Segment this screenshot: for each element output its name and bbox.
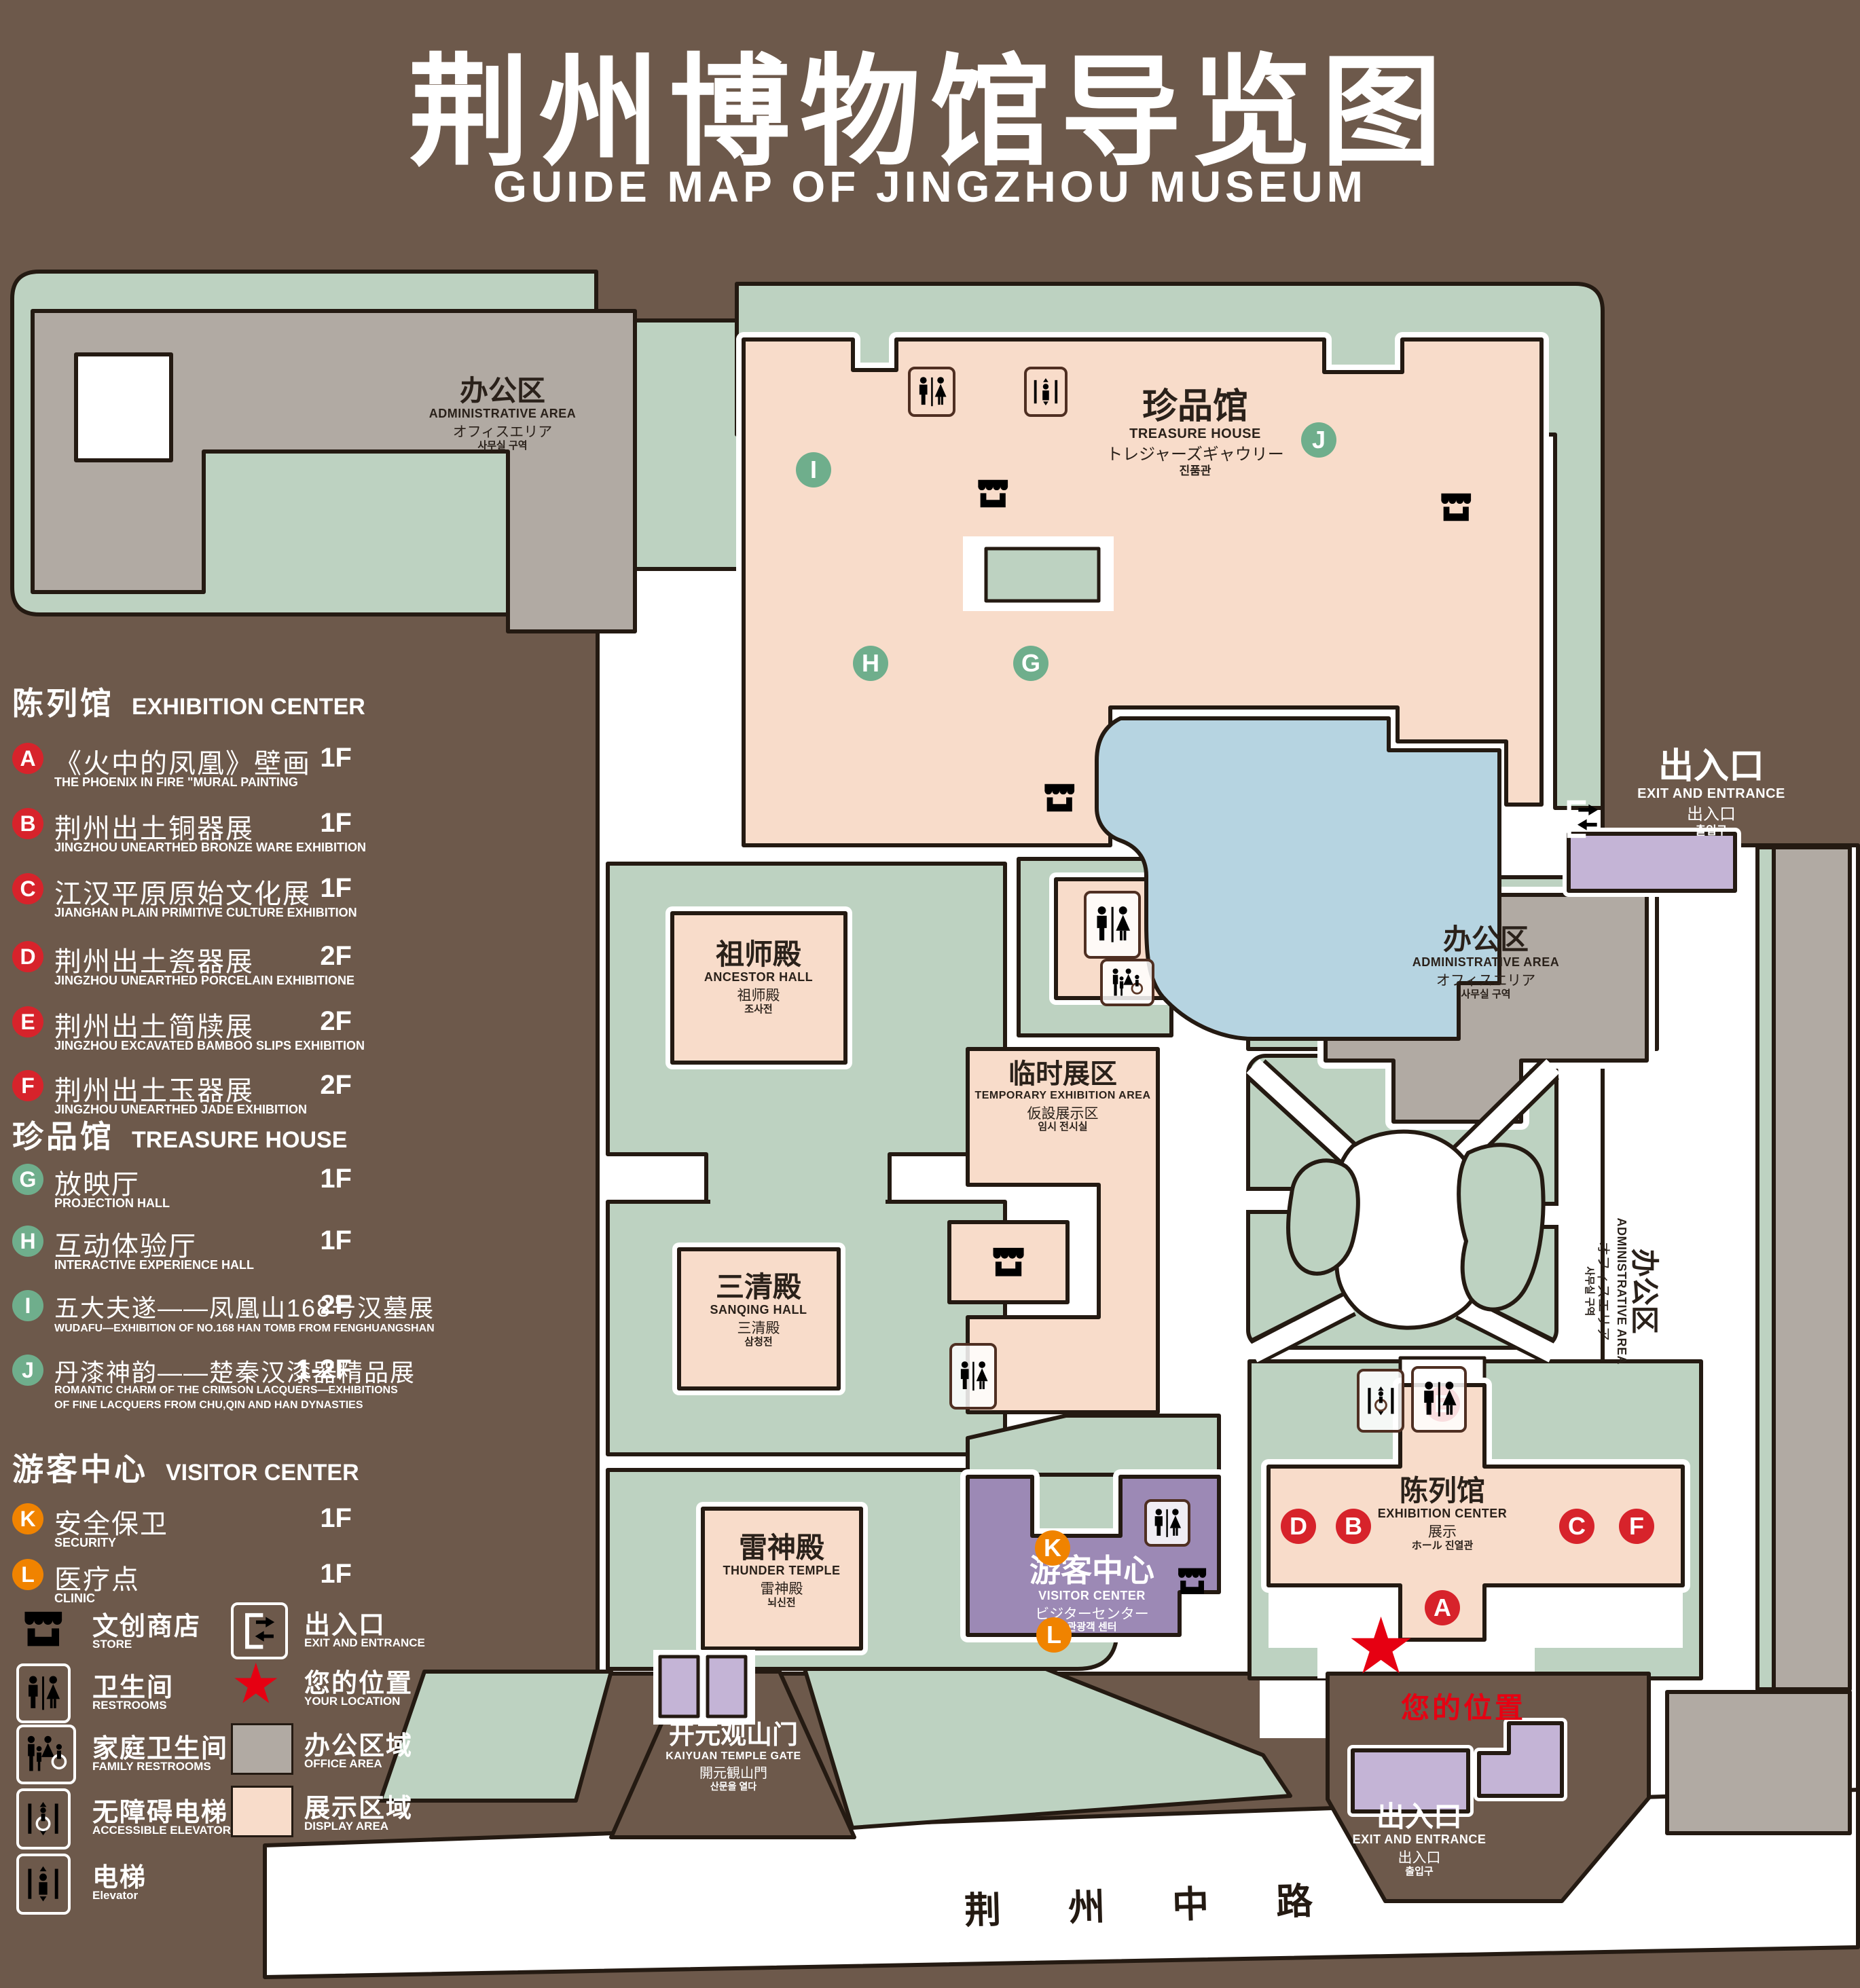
label-exit-south: 出入口EXIT AND ENTRANCE 出入口출입구 — [1229, 1801, 1609, 1878]
elevator-icon — [16, 1854, 71, 1915]
label-admin-northwest: 办公区ADMINISTRATIVE AREA オフィスエリア사무실 구역 — [312, 375, 693, 452]
legend-your-location: ★ 您的位置 YOUR LOCATION — [231, 1661, 516, 1715]
elevator-icon — [1024, 367, 1068, 417]
marker-h: H — [853, 646, 888, 681]
family-restroom-icon — [1100, 959, 1154, 1006]
marker-j: J — [1301, 422, 1336, 458]
your-location-star: ★ — [1346, 1608, 1416, 1686]
treasure-courtyard-lawn — [986, 549, 1099, 601]
legend-section-treasure: 珍品馆TREASURE HOUSE — [12, 1112, 347, 1157]
legend-exit: 出入口 EXIT AND ENTRANCE — [231, 1602, 516, 1657]
store-icon — [16, 1602, 71, 1657]
label-kaiyuan-gate: 开元观山门KAIYUAN TEMPLE GATE 開元観山門산문을 열다 — [543, 1721, 924, 1792]
exit-icon — [231, 1602, 288, 1659]
marker-i: I — [796, 452, 831, 487]
lawn-join-patch — [710, 1194, 886, 1211]
garden-island-west — [1288, 1160, 1358, 1274]
label-admin-center: 办公区ADMINISTRATIVE AREA オフィスエリア사무실 구역 — [1296, 923, 1676, 1001]
display-area-swatch — [231, 1786, 293, 1837]
office-nw-courtyard — [76, 354, 171, 460]
marker-k: K — [1035, 1530, 1070, 1566]
restroom-icon — [908, 367, 955, 417]
legend-section-exhibition: 陈列馆EXHIBITION CENTER — [12, 679, 365, 724]
legend-section-visitor: 游客中心VISITOR CENTER — [12, 1445, 359, 1490]
restroom-icon — [949, 1343, 997, 1410]
store-icon — [1038, 774, 1081, 823]
store-icon — [1434, 483, 1478, 532]
marker-c: C — [1559, 1509, 1594, 1544]
office-area-swatch — [231, 1723, 293, 1775]
marker-g: G — [1013, 646, 1048, 681]
marker-d: D — [1281, 1509, 1316, 1544]
marker-l: L — [1036, 1617, 1072, 1653]
label-admin-east: 办公区ADMINISTRATIVE AREA オフィスエリア사무실 구역 — [1583, 1101, 1660, 1481]
your-location-star: ★ — [231, 1657, 281, 1712]
legend-elevator: 电梯 Elevator — [16, 1854, 356, 1911]
store-icon — [986, 1237, 1031, 1287]
office-southeast-block — [1667, 1692, 1850, 1833]
restroom-icon — [1411, 1366, 1467, 1433]
accessible-elevator-icon — [16, 1788, 71, 1849]
marker-b: B — [1336, 1509, 1371, 1544]
road-name: 荆 州 中 路 — [964, 1870, 1342, 1934]
label-sanqing-hall: 三清殿SANQING HALL 三清殿삼청전 — [568, 1271, 949, 1348]
lawn-east-sliver — [1757, 847, 1774, 1689]
label-visitor-center: 游客中心VISITOR CENTER ビジターセンター관광객 센터 — [902, 1553, 1282, 1634]
marker-f: F — [1619, 1509, 1654, 1544]
store-icon — [1172, 1559, 1213, 1604]
office-east-strip — [1774, 847, 1850, 1689]
your-location-label: 您的位置 — [1348, 1685, 1579, 1727]
store-icon — [971, 470, 1015, 519]
marker-a: A — [1425, 1590, 1460, 1625]
restroom-icon — [16, 1663, 71, 1723]
restroom-icon — [1144, 1499, 1190, 1547]
legend-office-area: 办公区域 OFFICE AREA — [231, 1723, 516, 1778]
restroom-icon — [1084, 891, 1141, 959]
guide-map-page: { "title": {"cn": "荆州博物馆导览图", "en": "GUI… — [0, 0, 1860, 1988]
label-ancestor-hall: 祖师殿ANCESTOR HALL 祖师殿조사전 — [568, 938, 949, 1016]
legend-display-area: 展示区域 DISPLAY AREA — [231, 1786, 516, 1840]
accessible-elevator-icon — [1357, 1369, 1404, 1433]
label-temporary-exhibition: 临时展区TEMPORARY EXHIBITION AREA 仮設展示区임시 전시… — [873, 1059, 1253, 1133]
exit-icon — [1555, 790, 1609, 847]
family-restroom-icon — [16, 1725, 76, 1784]
